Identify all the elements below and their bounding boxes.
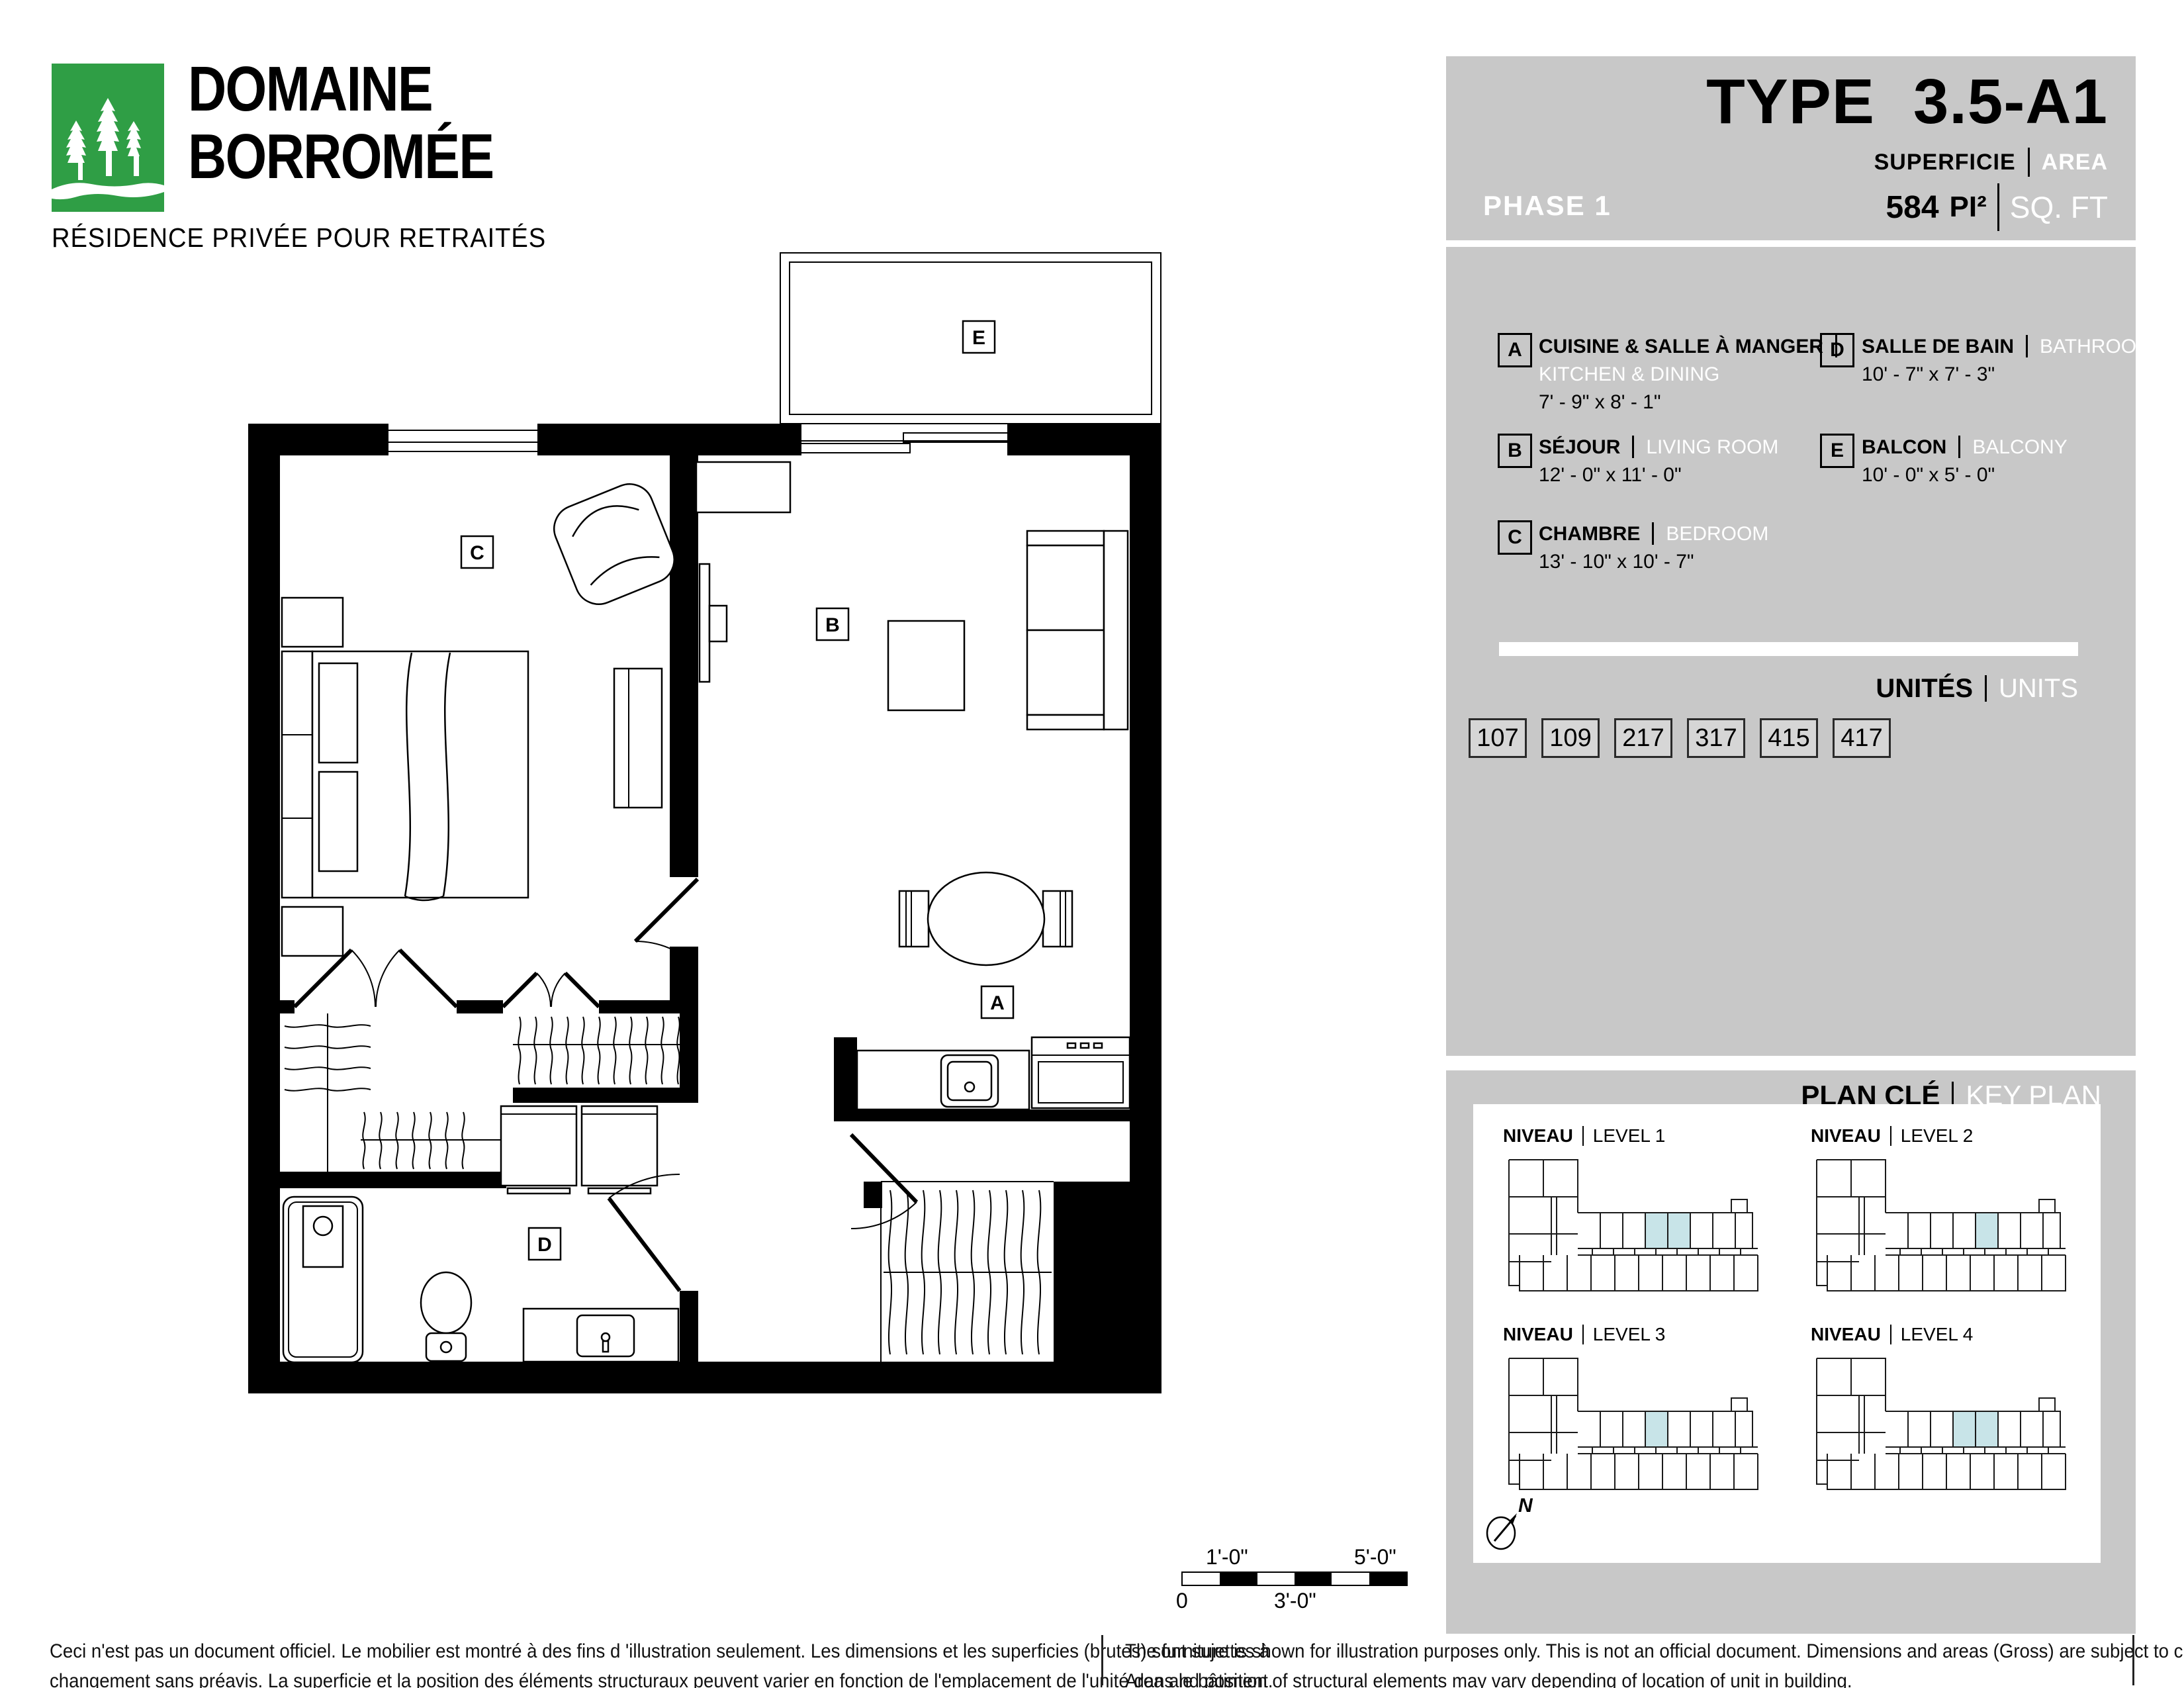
washer-dryer [501, 1106, 657, 1194]
legend-key-d: D [1820, 333, 1854, 367]
legend-item-d-dims: 10' - 7" x 7' - 3" [1862, 363, 1995, 386]
dishwasher [1032, 1037, 1130, 1108]
legend-item-e: BALCONBALCONY [1862, 436, 2068, 459]
keyplan-level-3 [1500, 1354, 1764, 1493]
wall [834, 1109, 1133, 1121]
wall [680, 1291, 698, 1364]
unit-type-title: TYPE 3.5-A1 [1706, 66, 2108, 138]
bed [282, 651, 528, 900]
legend-item-c-dims: 13' - 10" x 10' - 7" [1539, 551, 1694, 573]
units-label-en: UNITS [1999, 674, 2078, 703]
area-value-row: 584 PI² SQ. FT [1886, 183, 2108, 231]
north-compass-icon: N [1480, 1495, 1553, 1554]
disclaimer-fr-line2: changement sans préavis. La superficie e… [50, 1666, 1273, 1688]
sofa [1027, 531, 1128, 729]
area-label: AREA [2042, 150, 2108, 175]
scale-segment [1183, 1573, 1220, 1585]
wall [680, 1000, 698, 1093]
bathroom-vanity [523, 1309, 678, 1362]
closet-double-doors [295, 950, 599, 1007]
scale-segment [1332, 1573, 1369, 1585]
phase-label: PHASE 1 [1483, 190, 1612, 222]
nightstand [282, 598, 343, 647]
room-label-d: D [529, 1228, 561, 1260]
legend-fr: BALCON [1862, 436, 1946, 458]
separator [1632, 436, 1634, 458]
legend-fr: SALLE DE BAIN [1862, 336, 2014, 357]
compass-n: N [1518, 1495, 1533, 1517]
legend-key-a: A [1498, 333, 1532, 367]
legend-key-c: C [1498, 520, 1532, 555]
level-4-label: NIVEAULEVEL 4 [1811, 1324, 1973, 1345]
legend-key-e: E [1820, 434, 1854, 468]
keyplan-level-4 [1807, 1354, 2072, 1493]
dresser [614, 669, 662, 808]
separator [1958, 436, 1960, 458]
level-2-label: NIVEAULEVEL 2 [1811, 1125, 1973, 1147]
scale-label-3ft: 3'-0" [1274, 1589, 1316, 1613]
room-letter: C [470, 542, 484, 564]
legend-letter: E [1831, 440, 1844, 462]
entry-closet [881, 1182, 1054, 1362]
keyplan-level-1 [1500, 1156, 1764, 1295]
keyplan-level-2 [1807, 1156, 2072, 1295]
legend-fr: CHAMBRE [1539, 523, 1640, 545]
legend-en: BATHROOM [2040, 336, 2153, 357]
separator [1652, 522, 1654, 545]
legend-letter: B [1508, 440, 1522, 462]
room-letter: D [537, 1234, 552, 1256]
divider-bar [1499, 642, 2078, 656]
scale-label-0: 0 [1176, 1589, 1188, 1613]
unit-number-317: 317 [1687, 718, 1745, 758]
separator [1890, 1126, 1891, 1146]
disclaimer-fr-line1: Ceci n'est pas un document officiel. Le … [50, 1636, 1273, 1666]
legend-en: LIVING ROOM [1646, 436, 1778, 458]
unit-number-417: 417 [1833, 718, 1891, 758]
legend-item-c: CHAMBREBEDROOM [1539, 522, 1768, 545]
level-word: LEVEL 1 [1593, 1125, 1665, 1146]
nightstand [282, 907, 343, 956]
divider [1101, 1635, 1103, 1685]
legend-letter: D [1830, 339, 1844, 361]
niveau-word: NIVEAU [1811, 1125, 1881, 1146]
wall [1130, 424, 1161, 1393]
legend-letter: C [1508, 526, 1522, 549]
wall [248, 424, 280, 1393]
separator [1985, 675, 1987, 702]
floorplan-sheet: DOMAINE BORROMÉE RÉSIDENCE PRIVÉE POUR R… [0, 0, 2184, 1688]
legend-panel: A CUISINE & SALLE À MANGER KITCHEN & DIN… [1446, 247, 2136, 1056]
wall [280, 1172, 506, 1188]
floor-plan: E C B A D [238, 245, 1185, 1410]
logo-line2: BORROMÉE [188, 123, 493, 191]
dining-chair [899, 891, 929, 947]
wall [864, 1182, 882, 1208]
type-word: TYPE [1706, 66, 1875, 138]
closet-shelves [285, 1013, 506, 1172]
coffee-table [888, 621, 964, 710]
legend-item-d: SALLE DE BAINBATHROOM [1862, 335, 2153, 358]
keyplan-panel: PLAN CLÉKEY PLAN NIVEAULEVEL 1 [1446, 1070, 2136, 1634]
logo-line1: DOMAINE [188, 56, 493, 123]
wall-bedroom-living [670, 455, 698, 877]
scale-segment [1369, 1573, 1406, 1585]
area-labels: SUPERFICIE AREA [1874, 148, 2108, 177]
niveau-word: NIVEAU [1503, 1324, 1573, 1344]
disclaimer-en-line2: Area and position of structural elements… [1125, 1666, 2184, 1688]
area-value: 584 [1886, 189, 1938, 226]
closet-hangers [513, 1017, 698, 1084]
keyplan-canvas: NIVEAULEVEL 1 NIVEAULEVEL 2 NIVEAULEVEL … [1473, 1104, 2101, 1563]
legend-item-b-dims: 12' - 0" x 11' - 0" [1539, 464, 1682, 487]
dining-table [928, 872, 1044, 965]
legend-item-a-dims: 7' - 9" x 8' - 1" [1539, 391, 1661, 414]
unit-number-217: 217 [1614, 718, 1672, 758]
room-label-b: B [817, 608, 848, 640]
wall [248, 1362, 1161, 1393]
level-1-label: NIVEAULEVEL 1 [1503, 1125, 1665, 1147]
separator [1582, 1126, 1584, 1146]
wall [834, 1037, 857, 1121]
wall [457, 1000, 503, 1013]
room-letter: B [825, 614, 840, 636]
wall [513, 1088, 698, 1103]
scale-segment [1220, 1573, 1257, 1585]
unit-number-107: 107 [1469, 718, 1527, 758]
level-word: LEVEL 3 [1593, 1324, 1665, 1344]
separator [1890, 1325, 1891, 1344]
dining-chair [1043, 891, 1072, 947]
wall [1054, 1182, 1130, 1362]
superficie-label: SUPERFICIE [1874, 150, 2016, 175]
scale-bar [1181, 1571, 1408, 1586]
wall [280, 1000, 295, 1013]
legend-item-a-fr: CUISINE & SALLE À MANGER [1539, 335, 1849, 358]
legend-en: BEDROOM [1666, 523, 1768, 545]
separator [2028, 148, 2030, 177]
bathtub [283, 1197, 363, 1362]
divider [2132, 1635, 2134, 1685]
kitchen-counter [857, 1051, 1029, 1109]
legend-en: BALCONY [1972, 436, 2067, 458]
bedroom-window [388, 424, 538, 455]
scale-label-5ft: 5'-0" [1354, 1545, 1396, 1570]
niveau-word: NIVEAU [1811, 1324, 1881, 1344]
legend-fr: CUISINE & SALLE À MANGER [1539, 336, 1823, 357]
scale-segment [1257, 1573, 1295, 1585]
title-panel: TYPE 3.5-A1 SUPERFICIE AREA 584 PI² SQ. … [1446, 56, 2136, 240]
room-label-c: C [461, 536, 493, 568]
toilet [421, 1272, 471, 1361]
units-label-fr: UNITÉS [1876, 674, 1973, 703]
wall [538, 424, 801, 455]
armchair [547, 477, 681, 611]
area-unit-fr: PI² [1950, 191, 1987, 224]
balcony-sliding-door [801, 424, 1008, 455]
separator [2026, 335, 2028, 357]
legend-letter: A [1508, 339, 1522, 361]
room-letter: A [990, 992, 1005, 1014]
logo-trees-icon [52, 64, 164, 212]
disclaimer-en: The furniture is shown for illustration … [1125, 1636, 2184, 1688]
room-letter: E [972, 327, 985, 349]
unit-number-109: 109 [1541, 718, 1600, 758]
scale-label-1ft: 1'-0" [1206, 1545, 1248, 1570]
units-heading: UNITÉSUNITS [1876, 674, 2078, 704]
type-code: 3.5-A1 [1913, 66, 2108, 138]
legend-item-a-en: KITCHEN & DINING [1539, 363, 1719, 386]
level-word: LEVEL 4 [1901, 1324, 1973, 1344]
niveau-word: NIVEAU [1503, 1125, 1573, 1146]
scale-segment [1295, 1573, 1332, 1585]
disclaimer-en-line1: The furniture is shown for illustration … [1125, 1636, 2184, 1666]
legend-fr: SÉJOUR [1539, 436, 1620, 458]
room-label-a: A [981, 986, 1013, 1018]
disclaimer-fr: Ceci n'est pas un document officiel. Le … [50, 1636, 1273, 1688]
room-label-e: E [963, 321, 995, 353]
console-table [696, 462, 790, 512]
level-word: LEVEL 2 [1901, 1125, 1973, 1146]
unit-number-415: 415 [1760, 718, 1818, 758]
separator [1997, 183, 1999, 231]
area-unit-en: SQ. FT [2010, 189, 2108, 225]
level-3-label: NIVEAULEVEL 3 [1503, 1324, 1665, 1345]
legend-item-e-dims: 10' - 0" x 5' - 0" [1862, 464, 1995, 487]
legend-key-b: B [1498, 434, 1532, 468]
legend-item-b: SÉJOURLIVING ROOM [1539, 436, 1778, 459]
logo-wordmark: DOMAINE BORROMÉE [188, 56, 493, 191]
tv [700, 564, 727, 682]
separator [1582, 1325, 1584, 1344]
